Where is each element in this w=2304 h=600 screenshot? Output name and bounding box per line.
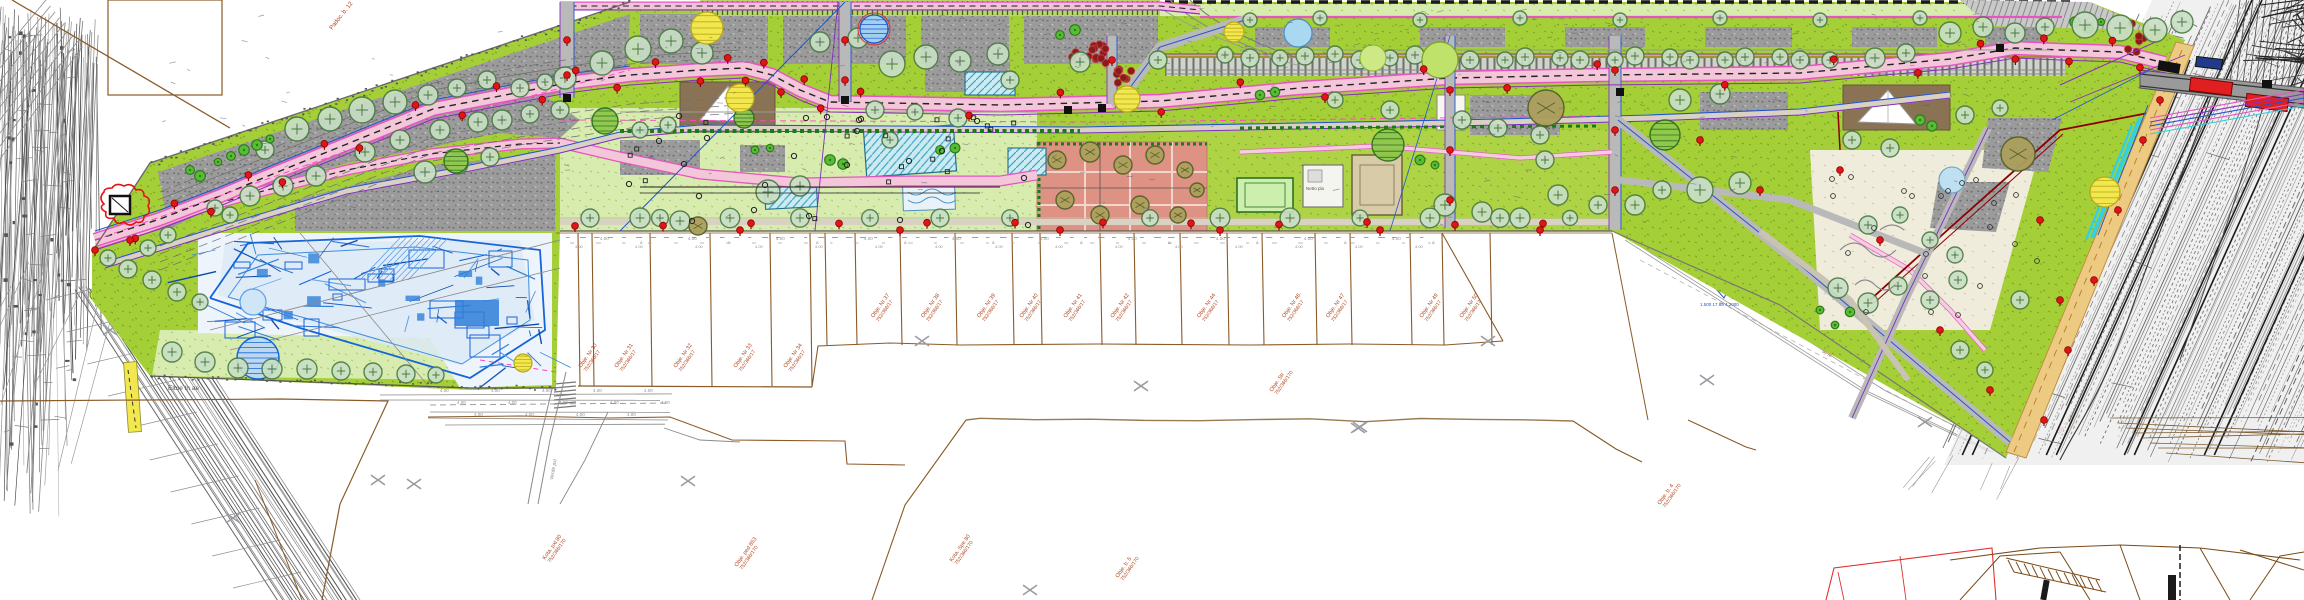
svg-text:4.00: 4.00 (755, 244, 764, 249)
svg-text:4.00: 4.00 (935, 244, 944, 249)
svg-text:4.00: 4.00 (695, 244, 704, 249)
svg-text:4.00: 4.00 (875, 244, 884, 249)
svg-text:4.00: 4.00 (627, 412, 636, 417)
svg-text:4.00: 4.00 (776, 236, 785, 241)
svg-text:4.00: 4.00 (1304, 236, 1313, 241)
svg-text:4.00: 4.00 (1415, 244, 1424, 249)
svg-text:4.00: 4.00 (864, 236, 873, 241)
svg-text:4.00: 4.00 (661, 400, 670, 405)
svg-text:4.00: 4.00 (635, 244, 644, 249)
svg-text:4.00: 4.00 (1055, 244, 1064, 249)
svg-text:1.500 17.85 4.2000: 1.500 17.85 4.2000 (1700, 302, 1739, 307)
svg-text:4.00: 4.00 (508, 400, 517, 405)
svg-text:4.00: 4.00 (1128, 236, 1137, 241)
svg-text:4.00: 4.00 (952, 236, 961, 241)
svg-text:4.00: 4.00 (525, 412, 534, 417)
svg-text:4.00: 4.00 (1392, 236, 1401, 241)
svg-text:4.00: 4.00 (474, 412, 483, 417)
svg-text:4.00: 4.00 (610, 400, 619, 405)
svg-text:4.00: 4.00 (1355, 244, 1364, 249)
svg-text:4.00: 4.00 (542, 388, 551, 393)
svg-text:4.00: 4.00 (1040, 236, 1049, 241)
svg-text:4.00: 4.00 (559, 400, 568, 405)
svg-text:4.00: 4.00 (457, 400, 466, 405)
svg-text:4.00: 4.00 (593, 388, 602, 393)
svg-text:Netto pla: Netto pla (1306, 186, 1325, 191)
svg-text:4.00: 4.00 (1115, 244, 1124, 249)
svg-text:4.00: 4.00 (600, 236, 609, 241)
svg-text:4.00: 4.00 (644, 388, 653, 393)
svg-text:4.00: 4.00 (1216, 236, 1225, 241)
svg-text:4.00: 4.00 (688, 236, 697, 241)
svg-text:4.00: 4.00 (1175, 244, 1184, 249)
svg-text:4.00: 4.00 (1295, 244, 1304, 249)
svg-text:4.00: 4.00 (575, 244, 584, 249)
svg-text:4.00: 4.00 (1235, 244, 1244, 249)
svg-text:Elbte In ae: Elbte In ae (168, 385, 199, 392)
svg-text:4.00: 4.00 (815, 244, 824, 249)
svg-text:4.00: 4.00 (576, 412, 585, 417)
svg-text:4.00: 4.00 (995, 244, 1004, 249)
